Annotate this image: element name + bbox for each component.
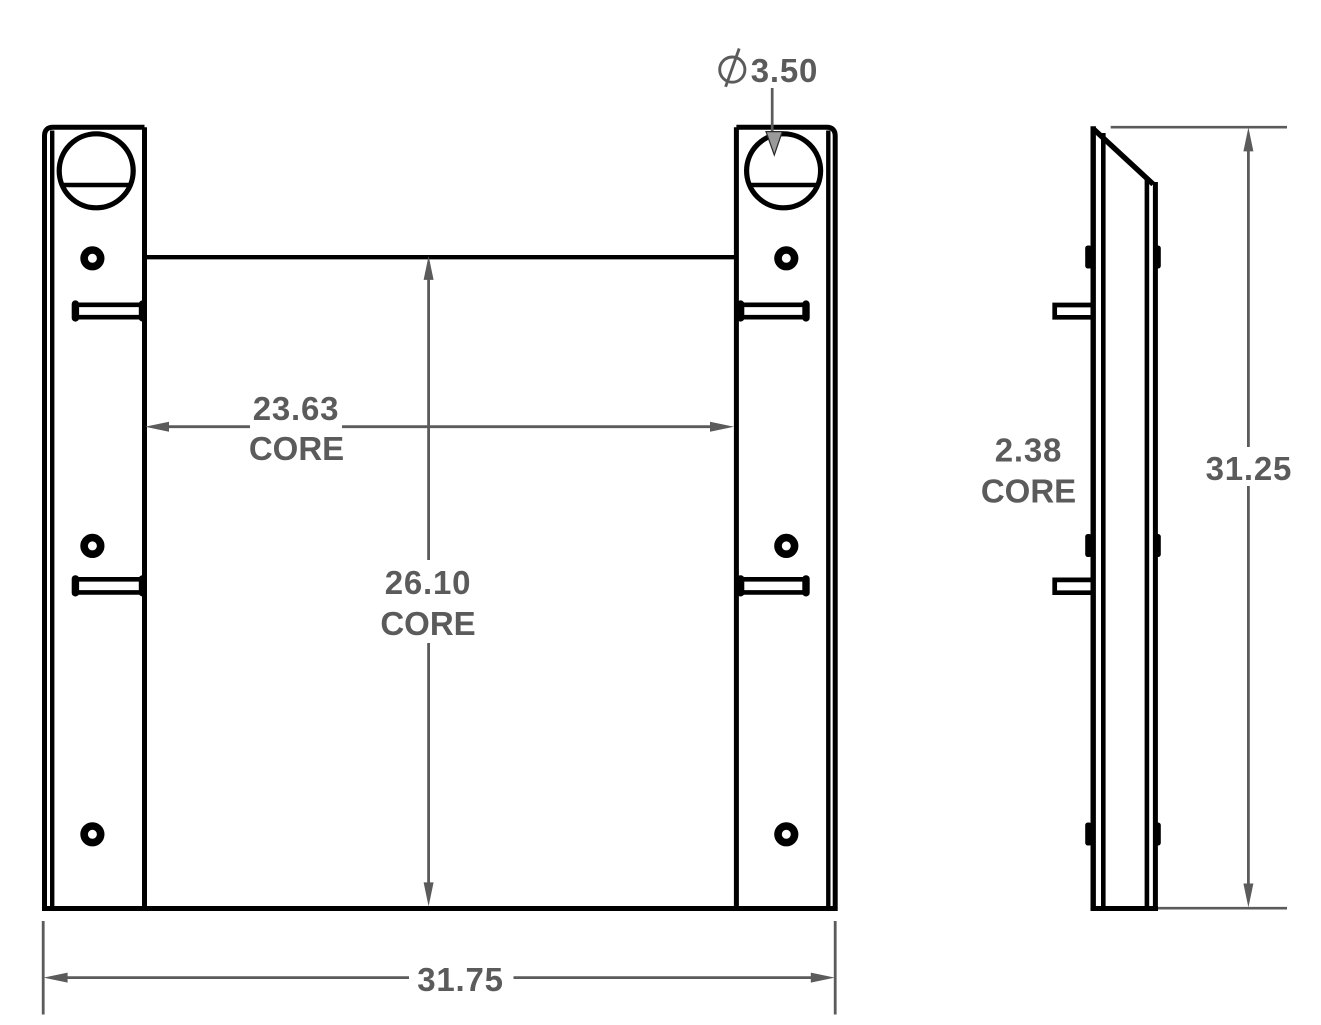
svg-text:3.50: 3.50: [751, 52, 818, 89]
svg-text:CORE: CORE: [981, 473, 1076, 510]
svg-text:2.38: 2.38: [995, 432, 1062, 469]
svg-text:CORE: CORE: [249, 430, 344, 467]
svg-text:31.75: 31.75: [417, 961, 504, 998]
svg-text:23.63: 23.63: [253, 390, 340, 427]
svg-text:31.25: 31.25: [1206, 450, 1293, 487]
svg-text:26.10: 26.10: [385, 564, 472, 601]
svg-text:CORE: CORE: [380, 605, 475, 642]
